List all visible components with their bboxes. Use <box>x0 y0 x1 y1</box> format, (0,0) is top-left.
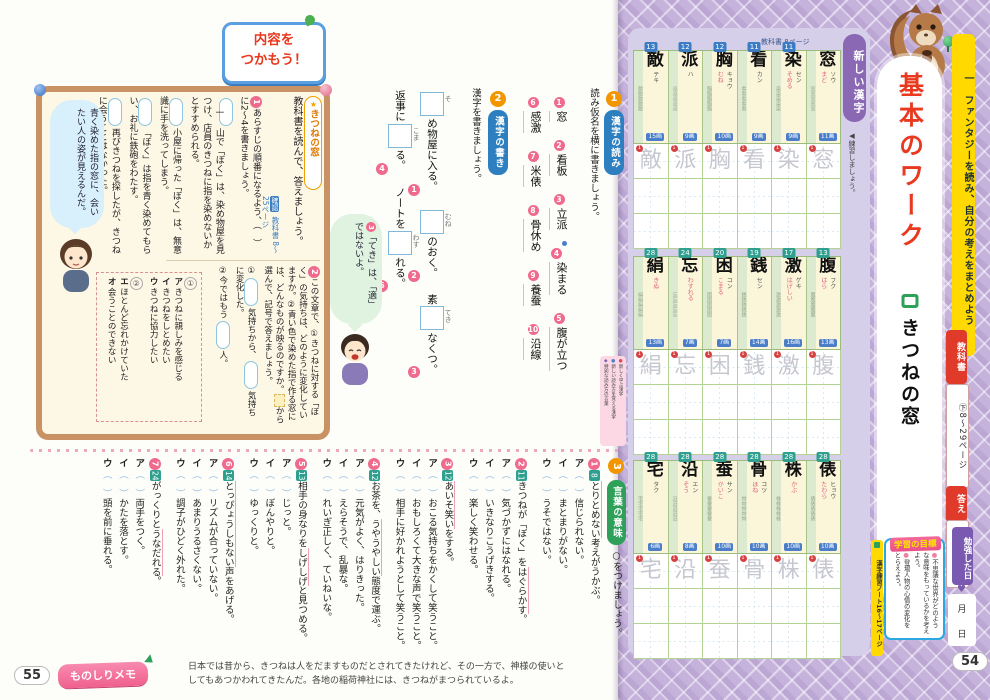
reading-hint: わす <box>411 234 420 248</box>
stroke-order-strip: 俵俵俵俵俵 <box>807 461 816 553</box>
reading-word: 感激 <box>523 111 543 133</box>
trivia-memo-text: 日本では昔から、きつねは人をだますものだとされてきたけれど、その一方で、神様の使… <box>188 660 658 689</box>
section-badge: 漢字の書き <box>488 110 508 175</box>
practice-cell-empty[interactable] <box>772 385 807 419</box>
answer-blank[interactable]: （ ） <box>337 470 348 499</box>
practice-cell-empty[interactable] <box>703 385 738 419</box>
kanji-cell: 13敵敵敵敵敵敵テキ15画 <box>634 51 669 143</box>
stroke-count-badge: 10画 <box>784 543 802 551</box>
meaning-question: 724がっくりとうなだれる。ア（ ）両手をつく。イ（ ）かたを落とす。ウ（ ）頭… <box>99 458 161 654</box>
practice-cell-empty[interactable] <box>703 214 738 248</box>
answer-blank[interactable]: （ ） <box>280 470 291 499</box>
item-number: 3 <box>408 366 420 378</box>
reading-item: 8骨休め <box>512 198 554 252</box>
option-key: ア <box>499 458 510 468</box>
legend-item: ●新しく学ぶ漢字 <box>617 359 624 443</box>
kanji-character: 困 <box>716 257 733 277</box>
answer-blank[interactable] <box>216 321 230 349</box>
kunyomi-reading: わすれる <box>685 277 694 339</box>
section-2-header: 2 漢字の書き <box>488 86 508 175</box>
kanji-cell: 窓窓窓窓窓窓ソウまど11画 <box>807 51 841 143</box>
trivia-memo-badge: ものしりメモ <box>58 661 149 688</box>
kanji-cell: 13腹腹腹腹腹腹フクはら13画 <box>807 257 841 349</box>
kanji-header-row: 28絹絹絹絹絹絹きぬ13画24忘忘忘忘忘忘わすれる7画20困困困困困困コンこまる… <box>633 256 841 350</box>
practice-cell-traced[interactable]: 1困 <box>703 350 738 384</box>
stroke-order-strip: 絹絹絹絹絹 <box>634 257 643 349</box>
option-key: ウ <box>101 458 112 468</box>
stroke-count-badge: 7画 <box>717 339 731 347</box>
practice-cell-empty[interactable] <box>772 214 807 248</box>
option-key: ア <box>133 458 144 468</box>
choice-option: ア（ ）両手をつく。 <box>132 458 145 654</box>
kanji-answer-box[interactable]: わす <box>388 231 412 255</box>
practice-cell-traced[interactable]: 1窓 <box>807 144 841 178</box>
item-number: 3 <box>554 194 565 205</box>
practice-cell-empty[interactable] <box>634 589 669 623</box>
practice-cell-empty[interactable] <box>772 589 807 623</box>
practice-cell-empty[interactable] <box>634 214 669 248</box>
reading-word: 沿線 <box>523 338 543 360</box>
onyomi-reading: コツ <box>759 481 768 543</box>
stroke-start-mark: 1 <box>671 555 678 562</box>
reading-item: 6感激 <box>512 90 554 133</box>
practice-cell-empty[interactable] <box>807 179 841 213</box>
answer-blank[interactable] <box>169 98 183 126</box>
choice-option: イ（ ）ぼんやりと。 <box>262 458 275 654</box>
kanji-cell: 28絹絹絹絹絹絹きぬ13画 <box>634 257 669 349</box>
practice-cell-empty[interactable] <box>669 179 704 213</box>
kanji-answer-box[interactable]: こま <box>388 124 412 148</box>
option-key: エ <box>118 277 128 286</box>
kanji-character: 看 <box>750 51 767 71</box>
choice-option: ア（ ）元気がよく、はりきった。 <box>352 458 365 654</box>
kanji-practice-row <box>633 420 841 455</box>
kanji-page-badge: 28 <box>644 452 657 462</box>
page-number-left: 55 <box>14 666 50 685</box>
choice-option: イ（ ）まとまりがない。 <box>555 458 568 654</box>
stroke-start-mark: 1 <box>705 145 712 152</box>
study-date-box[interactable]: 月 日 <box>948 594 976 646</box>
option-key: イ <box>160 277 170 286</box>
push-pin-icon <box>320 84 332 96</box>
section-2-instruction: 漢字を書きましょう。 <box>469 88 482 288</box>
key-term: うなだれる <box>150 529 163 577</box>
answer-blank[interactable]: （ ） <box>499 470 510 499</box>
stroke-start-mark: 1 <box>705 351 712 358</box>
kanji-trace-row: 1絹1忘1困1銭1激1腹 <box>633 350 841 385</box>
kanji-cell: 28株株株株株株かぶ10画 <box>772 461 807 553</box>
item-number: 6 <box>222 458 234 470</box>
practice-cell-empty[interactable] <box>738 214 773 248</box>
answer-blank[interactable]: （ ） <box>426 470 437 499</box>
answer-blank[interactable]: （ ） <box>263 470 274 499</box>
kanji-page-badge: 28 <box>713 452 726 462</box>
reading-items-column-left: 6感激7米俵8骨休め9養蚕10沿線 <box>512 90 554 371</box>
stroke-order-strip: 困困困困困 <box>703 257 712 349</box>
question-head: 724がっくりとうなだれる。 <box>148 458 161 654</box>
answer-blank[interactable]: （ ） <box>572 470 583 499</box>
kanji-writing-section: 2 漢字の書き 漢字を書きましょう。 1そめ物屋に入る。2むねのおく。3素てきな… <box>336 86 508 452</box>
answer-blank[interactable]: （ ） <box>206 470 217 499</box>
practice-cell-empty[interactable] <box>807 385 841 419</box>
pencil-tip-icon <box>144 654 156 666</box>
question-number: 1 <box>250 96 262 108</box>
stroke-start-mark: 1 <box>671 145 678 152</box>
boy-character-illustration <box>332 330 378 392</box>
practice-cell-traced[interactable]: 1絹 <box>634 350 669 384</box>
catch-phrase-badge: 内容を つかもう！ <box>222 22 326 84</box>
practice-cell-empty[interactable] <box>738 179 773 213</box>
kanji-cell: 28蚕蚕蚕蚕蚕蚕サンかいこ10画 <box>703 461 738 553</box>
kanji-character: 銭 <box>750 257 767 277</box>
practice-cell-empty[interactable] <box>703 589 738 623</box>
stroke-start-mark: 1 <box>705 555 712 562</box>
practice-cell-traced[interactable]: 1派 <box>669 144 704 178</box>
practice-cell-empty[interactable] <box>738 385 773 419</box>
choice-option: ウ（ ）うそではない。 <box>539 458 552 654</box>
onyomi-reading: コン <box>724 277 733 339</box>
practice-cell-empty[interactable] <box>703 624 738 658</box>
choice-option: ウ（ ）れいぎ正しく、ていねいな。 <box>319 458 332 654</box>
answer-blank[interactable]: （ ） <box>393 470 404 499</box>
practice-cell-empty[interactable] <box>669 420 704 454</box>
practice-cell-empty[interactable] <box>669 214 704 248</box>
answer-line: ②今ではもう人。 <box>216 266 230 424</box>
textbook-page-badge: 13 <box>296 470 307 481</box>
option-key: ウ <box>320 458 331 468</box>
kunyomi-reading: たわら <box>819 481 828 543</box>
textbook-page-badge: 12 <box>442 470 453 481</box>
choice-option: イ（ ）かたを落とす。 <box>116 458 129 654</box>
memo-line2: してもあつかわれてきたんだ。各地の稲荷神社には、きつねがまつられているよ。 <box>188 676 519 686</box>
legend-item: ●新しい読み方を覚える漢字 <box>609 359 616 443</box>
question-number: 2 <box>308 266 320 278</box>
kanji-page-badge: 11 <box>748 42 761 52</box>
answer-blank[interactable]: （ ） <box>133 470 144 499</box>
practice-cell-empty[interactable] <box>738 624 773 658</box>
question-head: 211きつねが「ぼく」をはぐらかす。 <box>514 458 527 654</box>
onyomi-reading: ハ <box>685 71 694 133</box>
onyomi-reading: ヒョウ <box>828 481 837 543</box>
practice-cell-empty[interactable] <box>634 420 669 454</box>
answer-blank[interactable]: （ ） <box>410 470 421 499</box>
option-group: ②エほとんど忘れかけていたオ会うことのできない <box>105 277 143 417</box>
answer-blank[interactable]: （ ） <box>540 470 551 499</box>
kanji-page-badge: 28 <box>748 452 761 462</box>
answer-blank[interactable] <box>244 278 258 306</box>
kanji-page-badge: 13 <box>817 248 830 258</box>
option-key: ア <box>173 277 183 286</box>
kanji-page-badge: 28 <box>817 452 830 462</box>
choice-option: ウ（ ）相手に好かれようとして笑うこと。 <box>392 458 405 654</box>
practice-cell-empty[interactable] <box>738 589 773 623</box>
answer-blank[interactable]: （ ） <box>556 470 567 499</box>
item-number: 4 <box>376 163 388 175</box>
stroke-count-badge: 13画 <box>646 339 664 347</box>
key-term: うやうやしい <box>369 519 382 576</box>
kanji-page-badge: 17 <box>782 248 795 258</box>
month-label: 月 <box>948 602 976 615</box>
stroke-start-mark: 1 <box>740 351 747 358</box>
item-number: 8 <box>528 205 539 216</box>
answer-blank[interactable]: （ ） <box>190 470 201 499</box>
kanji-answer-box[interactable]: てき <box>420 306 444 330</box>
choice-option: ア（ ）信じられない。 <box>571 458 584 654</box>
practice-cell-empty[interactable] <box>772 179 807 213</box>
practice-cell-empty[interactable] <box>807 420 841 454</box>
learning-goals-box: 学習の目標 ●不思議な世界がどのような意味をもっているかを考えよう。●登場人物の… <box>884 538 945 640</box>
stroke-count-badge: 14画 <box>750 339 768 347</box>
kanji-cell: 12派派派派派派ハ9画 <box>669 51 704 143</box>
kunyomi-reading: はげしい <box>784 277 793 339</box>
kanji-page-badge: 13 <box>644 42 657 52</box>
learning-goal: ●登場人物の心情の変化をとらえよう。 <box>892 552 910 634</box>
kanji-practice-row <box>633 385 841 420</box>
practice-cell-traced[interactable]: 1看 <box>738 144 773 178</box>
kanji-practice-row <box>633 214 841 249</box>
kanji-legend: ●新しく学ぶ漢字●新しい読み方を覚える漢字◆特別な読み方の言葉 <box>600 356 626 446</box>
practice-cell-traced[interactable]: 1宅 <box>634 554 669 588</box>
kanji-practice-row <box>633 624 841 659</box>
answer-blank[interactable]: （ ） <box>117 470 128 499</box>
practice-cell-traced[interactable]: 1蚕 <box>703 554 738 588</box>
check-badge: 確認 <box>270 196 279 212</box>
answer-blank[interactable] <box>138 98 152 126</box>
answer-blank[interactable]: （ ） <box>353 470 364 499</box>
kanji-cell: 17激激激激激激ゲキはげしい16画 <box>772 257 807 349</box>
practice-cell-traced[interactable]: 1株 <box>772 554 807 588</box>
practice-note: ◀練習しましょう。 <box>847 132 857 196</box>
kanji-character: 俵 <box>819 461 836 481</box>
choice-option: イ（ ）えらそうで、乱暴な。 <box>335 458 348 654</box>
answer-blank[interactable]: （ ） <box>483 470 494 499</box>
item-number: 4 <box>368 458 380 470</box>
divider <box>166 260 320 261</box>
stroke-order-strip: 忘忘忘忘忘 <box>669 257 678 349</box>
kanji-cell: 12胸胸胸胸胸胸キョウむね10画 <box>703 51 738 143</box>
textbook-pages: ㊦8〜29ページ <box>946 384 969 488</box>
item-number: 2 <box>554 140 565 151</box>
option-key: ア <box>280 458 291 468</box>
section-badge: 漢字の読み <box>604 110 624 175</box>
kanji-character: 激 <box>785 257 802 277</box>
page-number-right: 54 <box>952 652 988 671</box>
kanji-character: 絹 <box>647 257 664 277</box>
answer-blank[interactable]: （ ） <box>467 470 478 499</box>
practice-cell-empty[interactable] <box>703 420 738 454</box>
stroke-start-mark: 1 <box>671 351 678 358</box>
onyomi-reading: ゲキ <box>793 277 802 339</box>
practice-cell-empty[interactable] <box>807 589 841 623</box>
practice-cell-empty[interactable] <box>634 624 669 658</box>
kanji-header-row: 28宅宅宅宅宅宅タク6画28沿沿沿沿沿沿エンそう8画28蚕蚕蚕蚕蚕蚕サンかいこ1… <box>633 460 841 554</box>
section-1-instruction: 読み仮名を横に書きましょう。 <box>587 88 600 318</box>
kanji-character: 胸 <box>716 51 733 71</box>
stroke-start-mark: 1 <box>809 351 816 358</box>
stroke-count-badge: 10画 <box>715 133 733 141</box>
kunyomi-reading: かぶ <box>789 481 798 543</box>
kanji-page-badge: 12 <box>679 42 692 52</box>
practice-cell-empty[interactable] <box>703 179 738 213</box>
stroke-order-strip: 激激激激激 <box>772 257 781 349</box>
key-term: はぐらかす <box>516 567 529 615</box>
kanji-character: 忘 <box>681 257 698 277</box>
choice-option: ウ（ ）楽しく笑わせる。 <box>465 458 478 654</box>
option-key: イ <box>556 458 567 468</box>
option-group-label: ① <box>184 277 197 290</box>
learning-goals-title: 学習の目標 <box>890 536 941 552</box>
practice-cell-traced[interactable]: 1染 <box>772 144 807 178</box>
stroke-count-badge: 10画 <box>715 543 733 551</box>
practice-cell-traced[interactable]: 1沿 <box>669 554 704 588</box>
reading-hint: そ <box>443 95 452 102</box>
choice-option: ア（ ）じっと。 <box>278 458 291 654</box>
textbook-page-badge: 14 <box>223 470 234 481</box>
practice-cell-empty[interactable] <box>807 214 841 248</box>
goal-bullet: ● <box>903 552 910 559</box>
reading-hint: こま <box>411 127 420 141</box>
kanji-page-badge: 12 <box>713 42 726 52</box>
option-key: オ <box>106 277 116 286</box>
lesson-title-column: 基本のワーク きつねの窓 <box>877 56 942 604</box>
kanji-cell: 24忘忘忘忘忘忘わすれる7画 <box>669 257 704 349</box>
sequence-item: 「ぼく」は指を青く染めてもらい、お礼に鉄砲をわたす。 <box>126 96 153 254</box>
stroke-start-mark: 1 <box>809 555 816 562</box>
hint-speech-bubble: 青く染めた指の窓に、会いたい人の姿が見えるんだ。 <box>50 100 104 228</box>
lesson-type-title: 基本のワーク <box>892 72 928 252</box>
onyomi-reading: タク <box>651 481 660 543</box>
memo-line1: 日本では昔から、きつねは人をだますものだとされてきたけれど、その一方で、神様の使… <box>188 662 564 672</box>
stroke-start-mark: 1 <box>774 145 781 152</box>
stroke-order-strip: 株株株株株 <box>772 461 781 553</box>
kunyomi-reading: こまる <box>715 277 724 339</box>
practice-cell-traced[interactable]: 1銭 <box>738 350 773 384</box>
section-badge: 言葉の意味 <box>607 480 626 545</box>
answer-option: ウきつねに協力したい <box>147 277 159 417</box>
kanji-block-3: 28宅宅宅宅宅宅タク6画28沿沿沿沿沿沿エンそう8画28蚕蚕蚕蚕蚕蚕サンかいこ1… <box>633 460 841 659</box>
key-term: とっぴょうしもない <box>223 481 236 567</box>
practice-cell-empty[interactable] <box>807 624 841 658</box>
option-key: イ <box>263 458 274 468</box>
practice-cell-empty[interactable] <box>669 385 704 419</box>
answer-option: イきつねをしとめたい <box>159 277 171 417</box>
sprout-icon <box>304 14 317 27</box>
practice-cell-empty[interactable] <box>669 624 704 658</box>
reading-hint: てき <box>443 309 452 323</box>
question-head: 614とっぴょうしもない声をあげる。 <box>221 458 234 654</box>
hint-speech-bubble-2: 3「てき」は、「適」ではないよ。 <box>330 214 382 324</box>
kanji-page-badge: 19 <box>748 248 761 258</box>
onyomi-reading: セン <box>793 71 802 133</box>
stroke-order-strip: 宅宅宅宅宅 <box>634 461 643 553</box>
choice-option: イ（ ）おもしろくて大きな声で笑うこと。 <box>408 458 421 654</box>
item-number: 5 <box>554 313 565 324</box>
practice-cell-empty[interactable] <box>634 179 669 213</box>
kunyomi-reading: まど <box>819 71 828 133</box>
legend-item: ◆特別な読み方の言葉 <box>602 359 609 443</box>
stroke-order-strip: 染染染染染 <box>772 51 781 143</box>
kanji-character: 敵 <box>647 51 664 71</box>
key-term: とりとめない <box>589 481 602 538</box>
reading-word: 米俵 <box>523 165 543 187</box>
textbook-page-badge: 24 <box>150 470 161 481</box>
answer-blank[interactable]: 一 <box>219 98 233 126</box>
story-tag: ★きつねの窓 <box>304 96 322 190</box>
practice-cell-traced[interactable]: 1腹 <box>807 350 841 384</box>
option-key: ア <box>353 458 364 468</box>
word-meaning-section: 3 言葉の意味 ○をつけましょう。 18とりとめない考えがうかぶ。ア（ ）信じら… <box>24 458 626 654</box>
study-date-label: 勉強した日 <box>952 527 973 585</box>
practice-cell-traced[interactable]: 1俵 <box>807 554 841 588</box>
kunyomi-reading: そう <box>681 481 690 543</box>
practice-cell-traced[interactable]: 1胸 <box>703 144 738 178</box>
answer-blank[interactable] <box>108 98 122 126</box>
stroke-start-mark: 1 <box>636 555 643 562</box>
choice-option: ウ（ ）頭を前に垂れる。 <box>99 458 112 654</box>
practice-cell-empty[interactable] <box>772 420 807 454</box>
star-icon: ★ <box>309 100 318 109</box>
practice-cell-traced[interactable]: 1骨 <box>738 554 773 588</box>
practice-cell-traced[interactable]: 1敵 <box>634 144 669 178</box>
reading-item: 9養蚕 <box>512 263 554 306</box>
kanji-character: 沿 <box>681 461 698 481</box>
answer-blank[interactable]: （ ） <box>320 470 331 499</box>
answer-blank[interactable]: （ ） <box>101 470 112 499</box>
new-reading-dot <box>562 241 567 246</box>
book-icon <box>901 294 918 308</box>
practice-cell-empty[interactable] <box>634 385 669 419</box>
answer-blank[interactable]: （ ） <box>247 470 258 499</box>
stroke-count-badge: 11画 <box>819 133 837 141</box>
answer-blank[interactable] <box>244 361 258 389</box>
practice-cell-traced[interactable]: 1激 <box>772 350 807 384</box>
option-key: イ <box>117 458 128 468</box>
question-head: 18とりとめない考えがうかぶ。 <box>587 458 600 654</box>
choice-option: ア（ ）リズムが合っていない。 <box>205 458 218 654</box>
onyomi-reading: テキ <box>651 71 660 133</box>
kanji-block-2: 28絹絹絹絹絹絹きぬ13画24忘忘忘忘忘忘わすれる7画20困困困困困困コンこまる… <box>633 256 841 455</box>
practice-cell-empty[interactable] <box>669 589 704 623</box>
girl-character-illustration <box>52 234 100 300</box>
onyomi-reading: サン <box>724 481 733 543</box>
answer-blank[interactable]: （ ） <box>174 470 185 499</box>
new-kanji-label: 新しい漢字 <box>843 34 866 122</box>
kanji-header-row: 13敵敵敵敵敵敵テキ15画12派派派派派派ハ9画12胸胸胸胸胸胸キョウむね10画… <box>633 50 841 144</box>
practice-cell-empty[interactable] <box>772 624 807 658</box>
practice-cell-traced[interactable]: 1忘 <box>669 350 704 384</box>
key-term: しげしげ <box>296 548 309 586</box>
practice-cell-empty[interactable] <box>738 420 773 454</box>
section-number: 2 <box>490 91 506 107</box>
meaning-question: 312あいそ笑いをする。ア（ ）おこる気持ちをかくして笑うこと。イ（ ）おもしろ… <box>392 458 454 654</box>
box-intro: 教科書を読んで、答えましょう。 <box>289 96 304 248</box>
kanji-cell: 20困困困困困困コンこまる7画 <box>703 257 738 349</box>
item-number: 9 <box>528 270 539 281</box>
hint-number: 3 <box>366 222 376 232</box>
section-3-header: 3 言葉の意味 ○をつけましょう。 <box>607 458 626 654</box>
option-group: ①アきつねに親しみを感じるイきつねをしとめたいウきつねに協力したい <box>147 277 197 417</box>
catch-line2: つかもう！ <box>240 52 307 68</box>
sequence-item: 小屋に帰った「ぼく」は、無意識に手を洗ってしまう。 <box>156 96 183 254</box>
stroke-start-mark: 1 <box>740 555 747 562</box>
learning-goals-body: ●不思議な世界がどのような意味をもっているかを考えよう。●登場人物の心情の変化を… <box>890 552 939 634</box>
reading-item: 10沿線 <box>512 317 554 360</box>
textbook-page-badge: 8 <box>589 470 600 481</box>
stroke-count-badge: 15画 <box>646 133 664 141</box>
meaning-question: 513相手の身なりをしげしげと見つめる。ア（ ）じっと。イ（ ）ぼんやりと。ウ（… <box>246 458 308 654</box>
choice-option: イ（ ）あまりうるさくない。 <box>189 458 202 654</box>
option-key: ウ <box>148 277 158 286</box>
